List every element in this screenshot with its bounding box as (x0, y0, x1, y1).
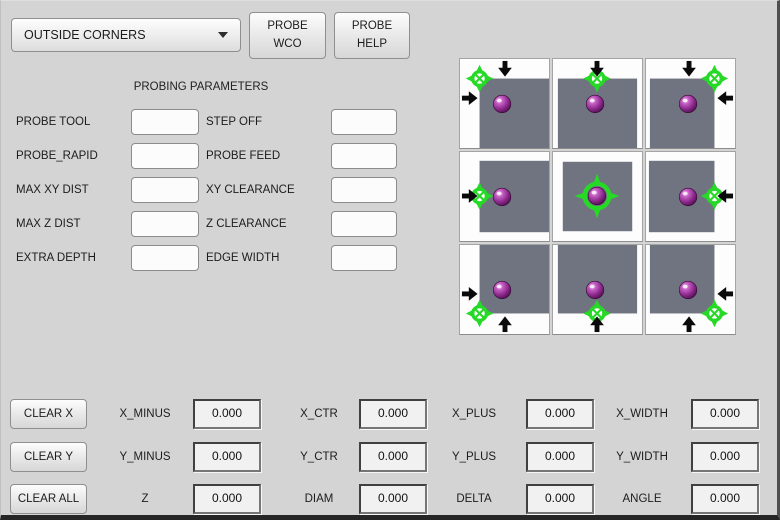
y-minus-label: Y_MINUS (105, 442, 185, 472)
arrow-right-icon (462, 91, 478, 105)
workpiece-square (650, 79, 715, 148)
workpiece-square (480, 245, 549, 313)
probe-rapid-label: PROBE_RAPID (16, 143, 98, 169)
step-off-input[interactable] (331, 109, 397, 135)
sphere-icon (679, 188, 697, 206)
probe-outside-edge-right-button[interactable] (645, 151, 736, 242)
sphere-icon (679, 281, 697, 299)
arrow-left-icon (717, 91, 733, 105)
angle-value: 0.000 (691, 484, 759, 514)
arrow-down-icon (498, 61, 512, 77)
z-clearance-label: Z CLEARANCE (206, 211, 287, 237)
max-xy-dist-label: MAX XY DIST (16, 177, 89, 203)
probe-tool-input[interactable] (131, 109, 199, 135)
param-row: EXTRA DEPTH EDGE WIDTH (1, 245, 459, 271)
x-minus-label: X_MINUS (105, 399, 185, 429)
arrow-down-icon (682, 61, 696, 77)
probe-outside-edge-top-button[interactable] (552, 58, 643, 149)
x-ctr-label: X_CTR (279, 399, 359, 429)
probe-outside-corner-bottom-left-button[interactable] (459, 244, 550, 335)
probe-outside-edge-left-button[interactable] (459, 151, 550, 242)
x-width-value: 0.000 (691, 399, 759, 429)
max-z-dist-label: MAX Z DIST (16, 211, 81, 237)
probe-tool-label: PROBE TOOL (16, 109, 90, 135)
probe-center-button[interactable] (552, 151, 643, 242)
delta-value: 0.000 (526, 484, 594, 514)
probe-rapid-input[interactable] (131, 143, 199, 169)
sphere-icon (493, 188, 511, 206)
y-plus-label: Y_PLUS (434, 442, 514, 472)
y-ctr-value: 0.000 (359, 442, 427, 472)
probe-wco-button[interactable]: PROBE WCO (249, 12, 326, 59)
probe-mode-selected-label: OUTSIDE CORNERS (24, 28, 146, 42)
probing-parameters-title: PROBING PARAMETERS (1, 81, 401, 93)
workpiece-square (650, 245, 715, 313)
sphere-icon (588, 187, 606, 205)
max-z-dist-input[interactable] (131, 211, 199, 237)
edge-width-label: EDGE WIDTH (206, 245, 279, 271)
arrow-left-icon (717, 287, 733, 301)
result-row: X_MINUS 0.000 X_CTR 0.000 X_PLUS 0.000 X… (1, 399, 779, 429)
edge-width-input[interactable] (331, 245, 397, 271)
y-minus-value: 0.000 (193, 442, 261, 472)
angle-label: ANGLE (602, 484, 682, 514)
param-row: MAX Z DIST Z CLEARANCE (1, 211, 459, 237)
probe-outside-corner-bottom-right-button[interactable] (645, 244, 736, 335)
z-label: Z (105, 484, 185, 514)
param-row: PROBE_RAPID PROBE FEED (1, 143, 459, 169)
y-plus-value: 0.000 (526, 442, 594, 472)
arrow-right-icon (462, 287, 478, 301)
x-width-label: X_WIDTH (602, 399, 682, 429)
sphere-icon (586, 95, 604, 113)
x-ctr-value: 0.000 (359, 399, 427, 429)
probe-outside-corner-top-left-button[interactable] (459, 58, 550, 149)
step-off-label: STEP OFF (206, 109, 262, 135)
probe-feed-label: PROBE FEED (206, 143, 280, 169)
workpiece-square (480, 79, 549, 148)
sphere-icon (493, 281, 511, 299)
chevron-down-icon (218, 32, 228, 38)
probe-feed-input[interactable] (331, 143, 397, 169)
y-width-value: 0.000 (691, 442, 759, 472)
sphere-icon (586, 281, 604, 299)
z-value: 0.000 (193, 484, 261, 514)
delta-label: DELTA (434, 484, 514, 514)
x-plus-value: 0.000 (526, 399, 594, 429)
param-row: PROBE TOOL STEP OFF (1, 109, 459, 135)
x-minus-value: 0.000 (193, 399, 261, 429)
xy-clearance-label: XY CLEARANCE (206, 177, 295, 203)
diam-label: DIAM (279, 484, 359, 514)
x-plus-label: X_PLUS (434, 399, 514, 429)
sphere-icon (493, 95, 511, 113)
arrow-up-icon (498, 316, 512, 332)
result-row: Z 0.000 DIAM 0.000 DELTA 0.000 ANGLE 0.0… (1, 484, 779, 514)
param-row: MAX XY DIST XY CLEARANCE (1, 177, 459, 203)
probe-screen-window: OUTSIDE CORNERS PROBE WCO PROBE HELP PRO… (0, 0, 780, 520)
result-row: Y_MINUS 0.000 Y_CTR 0.000 Y_PLUS 0.000 Y… (1, 442, 779, 472)
z-clearance-input[interactable] (331, 211, 397, 237)
arrow-up-icon (682, 316, 696, 332)
y-ctr-label: Y_CTR (279, 442, 359, 472)
y-width-label: Y_WIDTH (602, 442, 682, 472)
probe-help-button[interactable]: PROBE HELP (334, 12, 410, 59)
probe-mode-dropdown[interactable]: OUTSIDE CORNERS (11, 18, 241, 52)
diam-value: 0.000 (359, 484, 427, 514)
max-xy-dist-input[interactable] (131, 177, 199, 203)
xy-clearance-input[interactable] (331, 177, 397, 203)
sphere-icon (679, 95, 697, 113)
probe-grid (459, 58, 736, 335)
extra-depth-input[interactable] (131, 245, 199, 271)
probe-outside-edge-bottom-button[interactable] (552, 244, 643, 335)
extra-depth-label: EXTRA DEPTH (16, 245, 96, 271)
probe-outside-corner-top-right-button[interactable] (645, 58, 736, 149)
